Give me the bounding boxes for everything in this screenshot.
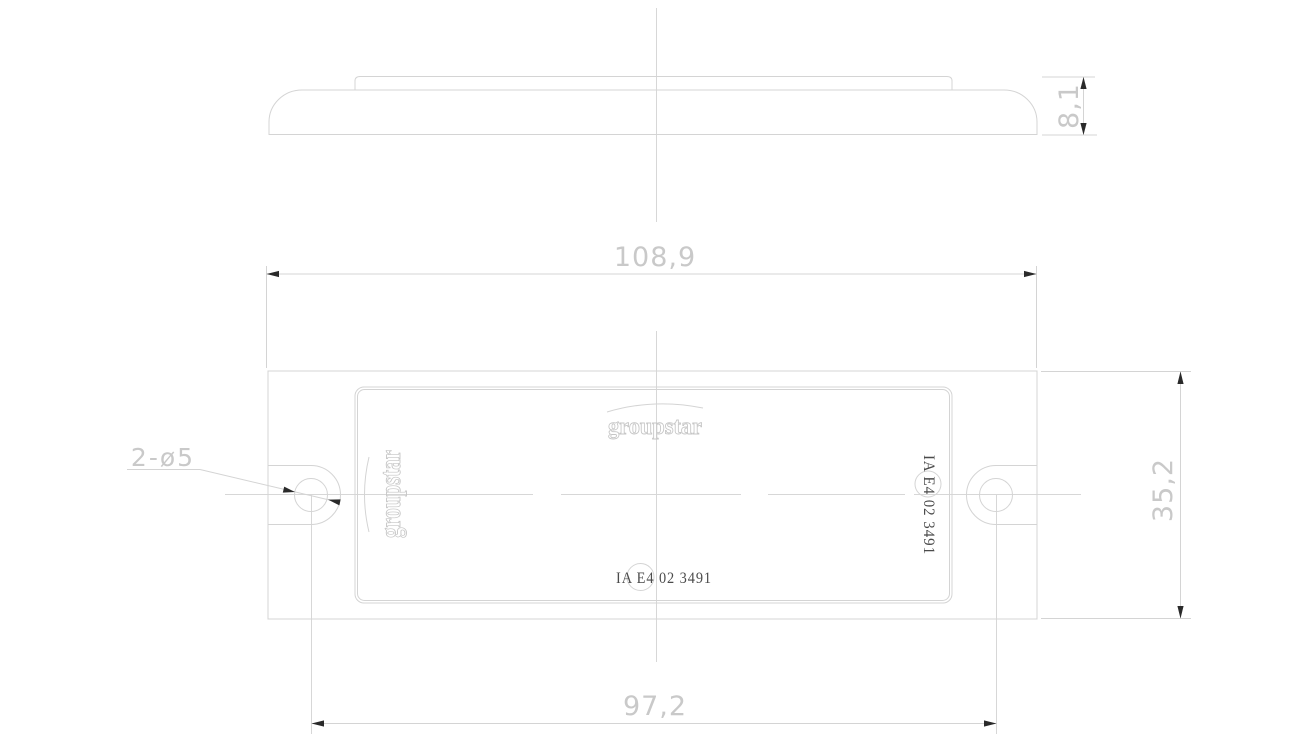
front-view: groupstar groupstar IA E4 02 3491 IA E4 … [225, 331, 1081, 734]
brand-logo-vertical-text: groupstar [374, 450, 407, 538]
dim-width-arrow-right [1024, 271, 1037, 277]
hole-callout-leader [200, 470, 340, 503]
dim-hole-spacing: 97,2 [312, 691, 997, 727]
dim-spacing-value: 97,2 [623, 691, 687, 722]
brand-logo-horizontal-text: groupstar [608, 414, 702, 440]
dim-depth-value: 8,1 [1054, 83, 1085, 129]
dim-spacing-arrow-right [984, 720, 997, 726]
technical-drawing-canvas: 8,1 108,9 [0, 0, 1316, 743]
dim-spacing-arrow-left [312, 720, 325, 726]
approval-mark-bottom-text: IA E4 02 3491 [616, 570, 712, 587]
approval-mark-side-text: IA E4 02 3491 [920, 455, 937, 555]
approval-mark-side: IA E4 02 3491 [915, 455, 941, 555]
hole-callout-value: 2-ø5 [131, 443, 195, 472]
brand-logo-horizontal-arc [607, 404, 703, 412]
hole-callout-arrow-right [328, 499, 341, 505]
dim-width-value: 108,9 [614, 242, 696, 273]
brand-logo-horizontal: groupstar [607, 404, 703, 440]
side-view [269, 8, 1037, 222]
side-view-body-profile [269, 90, 1037, 135]
hole-callout-arrow-left [283, 487, 295, 493]
dim-overall-width: 108,9 [267, 242, 1037, 368]
dim-height-arrow-bottom [1177, 606, 1183, 619]
dim-height-arrow-top [1177, 372, 1183, 385]
approval-mark-bottom: IA E4 02 3491 [616, 564, 712, 591]
dim-depth: 8,1 [1042, 77, 1097, 135]
hole-callout: 2-ø5 [127, 443, 341, 505]
dim-height-value: 35,2 [1148, 458, 1179, 522]
dim-width-arrow-left [267, 271, 280, 277]
side-view-lens-lip [355, 77, 952, 91]
cad-drawing-sheet: 8,1 108,9 [0, 0, 1316, 743]
